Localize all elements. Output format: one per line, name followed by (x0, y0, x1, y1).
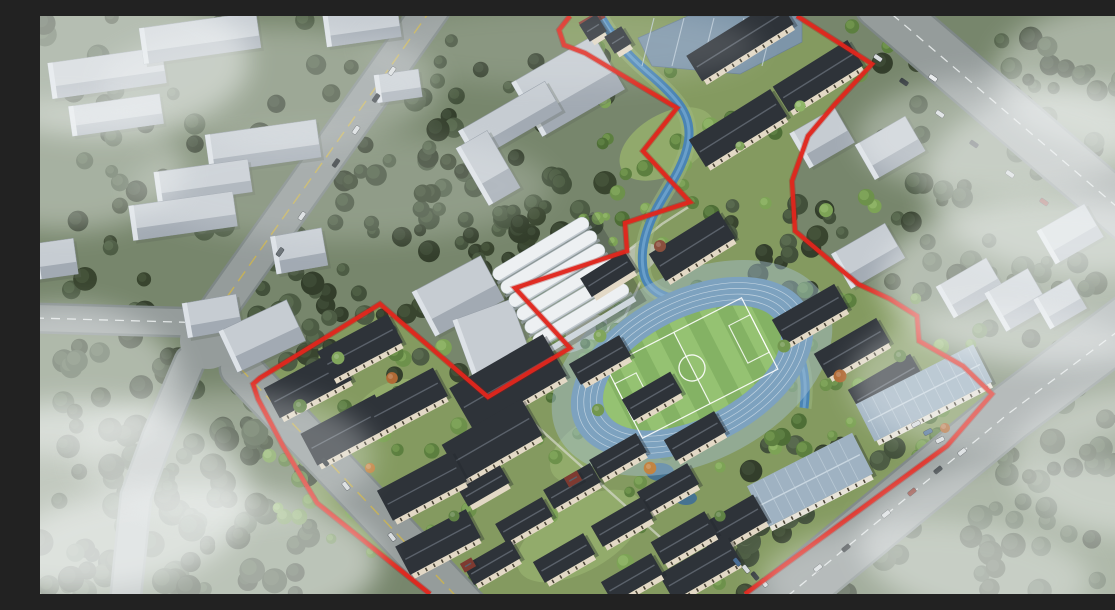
tree-cluster (620, 168, 632, 180)
aerial-site-rendering: aerial architectural rendering of campus… (40, 16, 1115, 594)
tree-cluster (820, 379, 832, 391)
tree-cluster (548, 450, 562, 464)
tree-cluster (781, 245, 799, 263)
tree-cluster (845, 19, 859, 33)
tree-cluster (845, 417, 856, 428)
tree-cluster (321, 310, 337, 326)
tree-cluster (551, 174, 572, 195)
accent-tree (777, 339, 790, 352)
tree-cluster (301, 272, 325, 296)
accent-tree (594, 330, 607, 343)
accent-tree (592, 404, 604, 416)
tree-cluster (424, 443, 439, 458)
tree-cluster (602, 213, 610, 221)
tree-cluster (759, 197, 771, 209)
accent-tree (735, 141, 744, 150)
tree-cluster (764, 430, 780, 446)
accent-tree (794, 100, 805, 111)
accent-tree (386, 372, 398, 384)
accent-tree (449, 511, 460, 522)
accent-tree (644, 462, 657, 475)
accent-tree (332, 352, 345, 365)
tree-cluster (351, 285, 367, 301)
tree-cluster (526, 226, 540, 240)
tree-cluster (624, 487, 635, 498)
tree-cluster (836, 226, 849, 239)
tree-cluster (791, 413, 807, 429)
tree-cluster (337, 263, 350, 276)
tree-cluster (726, 199, 740, 213)
tree-cluster (511, 215, 530, 234)
tree-cluster (597, 138, 609, 150)
tree-cluster (715, 462, 726, 473)
accent-tree (654, 240, 666, 252)
tree-cluster (634, 476, 647, 489)
accent-tree (834, 370, 847, 383)
tree-cluster (755, 244, 773, 262)
tree-cluster (418, 240, 440, 262)
tree-cluster (137, 272, 151, 286)
tree-cluster (740, 460, 763, 483)
fog-cloud (75, 391, 375, 521)
tree-cluster (527, 207, 546, 226)
tree-cluster (610, 185, 625, 200)
fog-cloud (130, 131, 550, 241)
tree-cluster (391, 444, 403, 456)
tree-cluster (448, 87, 465, 104)
tree-cluster (858, 189, 875, 206)
tree-cluster (103, 240, 119, 256)
massing-building (40, 238, 81, 283)
site-plan-rendering-canvas (40, 16, 1115, 594)
tree-cluster (827, 430, 838, 441)
tree-cluster (412, 348, 430, 366)
tree-cluster (819, 203, 833, 217)
accent-tree (714, 510, 725, 521)
